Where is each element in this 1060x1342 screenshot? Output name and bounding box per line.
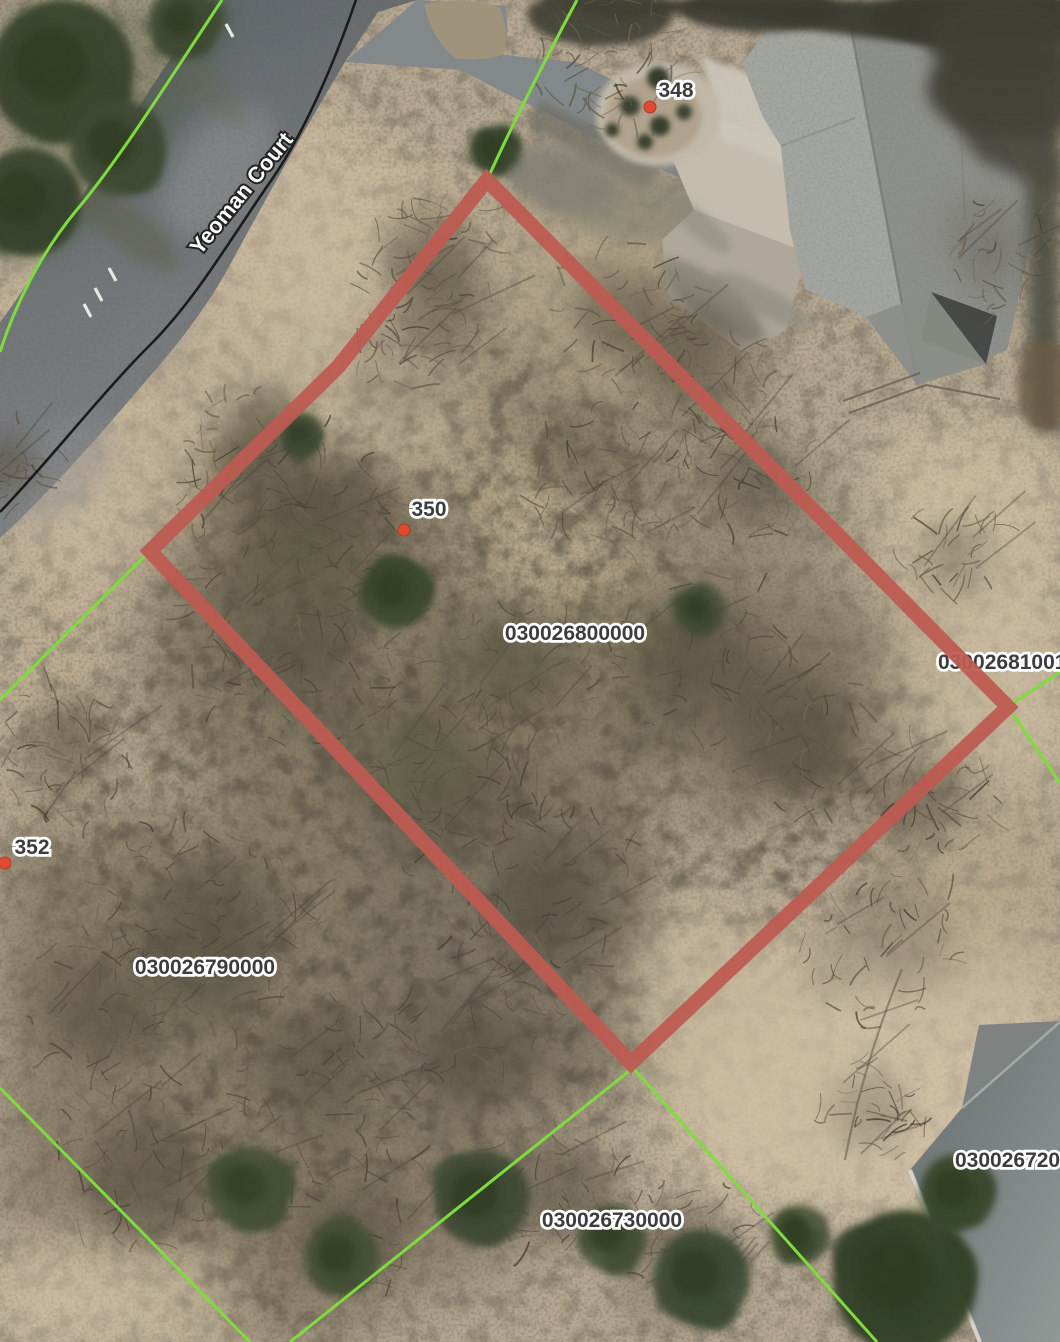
svg-text:030026790000: 030026790000 [135, 956, 275, 979]
svg-text:348: 348 [658, 79, 693, 102]
svg-text:030026720000: 030026720000 [955, 1149, 1060, 1172]
svg-text:030026730000: 030026730000 [542, 1209, 682, 1232]
svg-text:350: 350 [411, 498, 446, 521]
svg-text:352: 352 [14, 836, 49, 859]
svg-text:030026800000: 030026800000 [505, 622, 645, 645]
